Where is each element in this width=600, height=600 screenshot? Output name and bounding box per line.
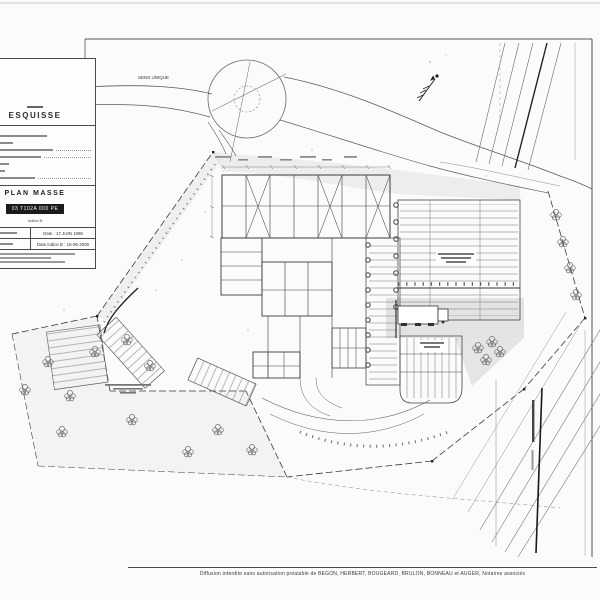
document-title: PLAN MASSE — [0, 190, 95, 197]
illegible-text-line — [0, 149, 53, 151]
illegible-text-line — [0, 156, 41, 158]
illegible-text-line — [27, 106, 43, 108]
illegible-text-line — [0, 163, 9, 165]
building-south-wing — [221, 238, 400, 385]
illegible-text-line — [0, 232, 17, 234]
title-block-notes-section — [0, 249, 95, 263]
north-arrow-icon — [417, 74, 439, 101]
illegible-text-line — [0, 142, 13, 144]
parking-east — [394, 200, 582, 320]
roundabout — [208, 60, 286, 162]
title-block-parties-section — [0, 125, 95, 185]
title-block-document-section: PLAN MASSE 03 T102A 000 PE Indice B — [0, 185, 95, 227]
one-way-label: SENS UNIQUE — [138, 75, 169, 80]
date-created: Date : 17 JUIN 1998 — [31, 228, 95, 238]
illegible-text-line — [0, 243, 13, 245]
drawing-reference-badge: 03 T102A 000 PE — [6, 204, 65, 214]
illegible-text-line — [0, 257, 51, 259]
title-block-dates-section: Date : 17 JUIN 1998 Date indice B : 16-0… — [0, 227, 95, 249]
road-northeast — [440, 43, 575, 186]
illegible-text-line — [0, 135, 47, 137]
illegible-text-line — [0, 177, 35, 179]
illegible-text-line — [0, 170, 5, 172]
title-block-phase-section: ESQUISSE — [0, 59, 95, 125]
date-revised: Date indice B : 16-06-2000 — [31, 239, 95, 249]
phase-label: ESQUISSE — [9, 111, 62, 120]
revision-indice: Indice B — [0, 218, 95, 223]
street-name-vertical-label — [532, 400, 534, 442]
illegible-text-line — [0, 253, 75, 255]
title-block: ESQUISSE PLAN MASSE 03 T102A 000 PE Indi… — [0, 58, 96, 269]
scanned-site-plan-page: SENS UNIQUE — [0, 0, 600, 600]
diffusion-restriction-text: Diffusion interdite sans autorisation pr… — [128, 571, 597, 577]
illegible-text-line — [0, 261, 65, 263]
footer-note: Diffusion interdite sans autorisation pr… — [128, 567, 597, 577]
